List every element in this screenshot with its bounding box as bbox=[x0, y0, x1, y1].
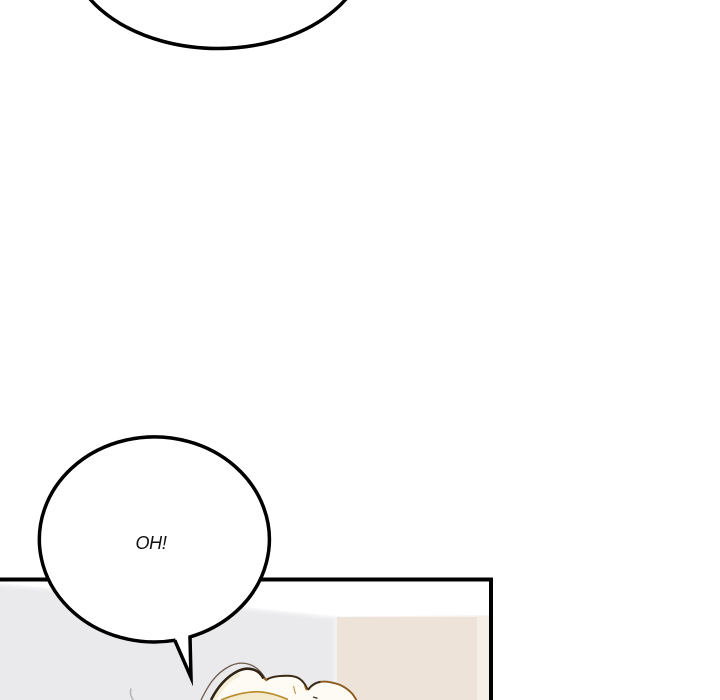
svg-text:OH!: OH! bbox=[135, 533, 166, 553]
